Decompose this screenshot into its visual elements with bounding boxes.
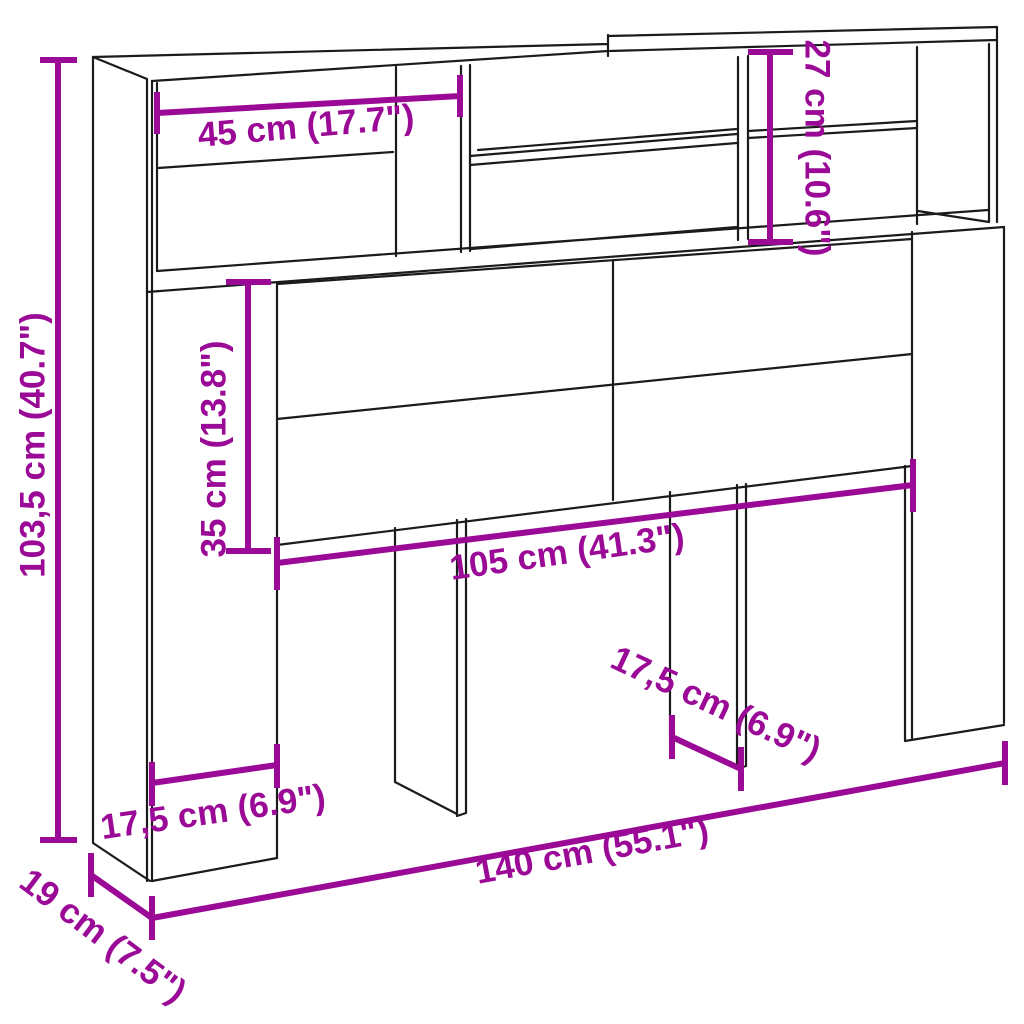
left-leg-bottom-edge xyxy=(152,858,277,881)
left-side-panel xyxy=(93,57,152,881)
dim-top-section-height-label: 27 cm (10.6") xyxy=(798,40,837,257)
dim-left-leg-width-label: 17,5 cm (6.9") xyxy=(98,777,328,847)
dim-shelf-width: 45 cm (17.7") xyxy=(157,75,460,155)
dim-top-section-height-line xyxy=(748,52,793,242)
dim-panel-height: 35 cm (13.8") xyxy=(195,282,272,558)
right-side-panel xyxy=(905,227,1004,741)
dim-shelf-width-label: 45 cm (17.7") xyxy=(196,97,416,155)
dim-depth: 19 cm (7.5") xyxy=(12,853,193,1011)
headboard-dimension-diagram: 103,5 cm (40.7") 45 cm (17.7") 27 cm (10… xyxy=(0,0,1024,1024)
dimension-annotations: 103,5 cm (40.7") 45 cm (17.7") 27 cm (10… xyxy=(12,40,1005,1012)
dim-left-leg-width: 17,5 cm (6.9") xyxy=(98,744,328,847)
dim-total-height-label: 103,5 cm (40.7") xyxy=(14,312,53,578)
dim-panel-height-label: 35 cm (13.8") xyxy=(195,341,234,558)
dim-total-width-label: 140 cm (55.1") xyxy=(472,810,712,891)
top-face xyxy=(93,27,997,81)
dim-middle-leg-depth-label: 17,5 cm (6.9") xyxy=(605,638,827,769)
dim-total-height: 103,5 cm (40.7") xyxy=(14,60,78,840)
diagram-canvas: 103,5 cm (40.7") 45 cm (17.7") 27 cm (10… xyxy=(0,0,1024,1024)
top-section-bottom xyxy=(147,210,1004,292)
dim-middle-leg-depth: 17,5 cm (6.9") xyxy=(605,638,827,791)
